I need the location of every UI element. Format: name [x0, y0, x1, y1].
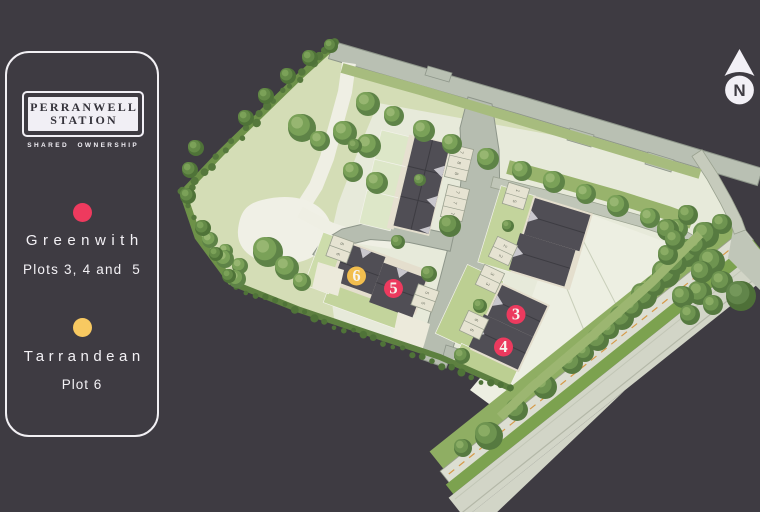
svg-text:6: 6	[352, 266, 360, 285]
svg-text:N: N	[733, 81, 745, 100]
svg-text:4: 4	[499, 337, 507, 356]
svg-text:3: 3	[512, 305, 520, 324]
svg-text:5: 5	[389, 279, 397, 298]
